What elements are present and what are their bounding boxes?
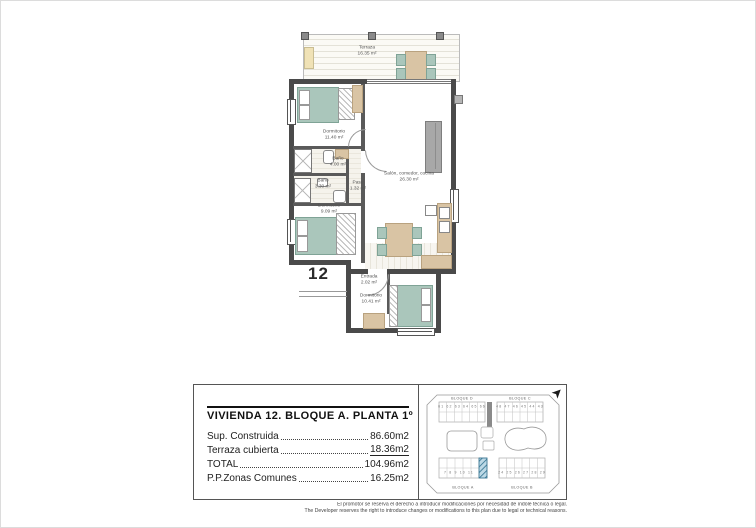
terrace-deck: [303, 34, 460, 82]
wall: [436, 269, 441, 333]
pillow: [299, 90, 310, 105]
pillow: [297, 236, 308, 252]
room-label-dormitorio-1: Dormitorio 11.40 m²: [323, 129, 345, 140]
floor-plan-sheet: 12 Terraza 16.35 m² Dormitorio 11.40 m² …: [0, 0, 756, 528]
info-row-value: 104.96m2: [365, 459, 409, 470]
appliance: [439, 221, 450, 233]
info-row-label: Sup. Construida: [207, 431, 279, 442]
room-label-salon: Salón, comedor, cocina 26.30 m²: [384, 171, 434, 182]
tv-unit: [425, 205, 437, 216]
appliance: [439, 207, 450, 219]
terrace-planter: [304, 47, 314, 69]
wall: [289, 79, 367, 84]
window-line: [398, 331, 432, 332]
wall: [346, 269, 368, 274]
entry-mat: [363, 313, 385, 329]
path-line: [299, 296, 347, 297]
info-row: TOTAL 104.96m2: [207, 457, 409, 470]
pillow: [299, 105, 310, 120]
room-label-entrada: Entrada 2.02 m²: [361, 274, 378, 285]
chair: [412, 227, 422, 239]
dining-table: [385, 223, 413, 257]
room-area: 16.35 m²: [358, 51, 377, 57]
room-area: 11.40 m²: [323, 135, 345, 141]
info-row-value: 16.25m2: [370, 473, 409, 484]
door-arc: [365, 150, 387, 172]
door-arc: [348, 129, 366, 147]
info-row-label: Terraza cubierta: [207, 445, 279, 456]
info-row-value: 86.60m2: [370, 431, 409, 442]
terrace-chair: [396, 54, 406, 66]
toilet: [333, 190, 346, 203]
info-divider: [207, 406, 409, 408]
legal-line-en: The Developer reserves the right to intr…: [227, 508, 567, 514]
kitchen-counter: [421, 255, 452, 269]
info-panel: VIVIENDA 12. BLOQUE A. PLANTA 1º Sup. Co…: [193, 384, 419, 500]
pillow: [421, 288, 431, 305]
block-c-unit-numbers: 48 47 46 45 44 43: [496, 405, 544, 408]
site-plan-panel: ➤ BLOQUE D BLOQUE C: [418, 384, 567, 500]
room-label-paso: Paso 1.32 m²: [350, 180, 366, 191]
room-label-terraza: Terraza 16.35 m²: [358, 45, 377, 56]
chair: [377, 227, 387, 239]
block-a-unit-numbers: 7 8 9 10 11: [444, 471, 474, 474]
wardrobe: [336, 213, 356, 255]
info-row: Terraza cubierta 18.36m2: [207, 443, 409, 456]
sliding-door: [367, 79, 451, 84]
info-row-label: P.P.Zonas Comunes: [207, 473, 297, 484]
leader-dots: [299, 481, 368, 482]
terrace-post: [301, 32, 309, 40]
info-row: P.P.Zonas Comunes 16.25m2: [207, 471, 409, 484]
room-label-bano-2: Baño 3.30 m²: [315, 178, 331, 189]
dresser: [352, 85, 363, 113]
room-area: 3.30 m²: [315, 184, 331, 190]
room-label-dormitorio-2: Dormitorio 9.09 m²: [318, 203, 340, 214]
hall-floor: [349, 149, 361, 203]
room-label-dormitorio-3: Dormitorio 10.41 m²: [360, 293, 382, 304]
window-line: [290, 220, 291, 242]
terrace-post: [436, 32, 444, 40]
pillow: [421, 305, 431, 322]
info-row-label: TOTAL: [207, 459, 238, 470]
shower: [294, 149, 312, 173]
room-area: 2.02 m²: [361, 280, 378, 286]
block-c-label: BLOQUE C: [509, 397, 531, 401]
floor-plan-drawing: 12 Terraza 16.35 m² Dormitorio 11.40 m² …: [1, 1, 756, 381]
site-map-drawing: [419, 385, 567, 501]
terrace-post: [368, 32, 376, 40]
legal-disclaimer: El promotor se reserva el derecho a intr…: [227, 502, 567, 515]
info-title: VIVIENDA 12. BLOQUE A. PLANTA 1º: [207, 410, 413, 422]
room-area: 10.41 m²: [360, 299, 382, 305]
terrace-table: [405, 51, 427, 81]
room-label-bano-1: Baño 4.00 m²: [330, 156, 346, 167]
room-area: 4.00 m²: [330, 162, 346, 168]
shower: [294, 178, 311, 203]
block-b-label: BLOQUE B: [511, 486, 533, 490]
sofa: [425, 121, 442, 173]
window-line: [290, 100, 291, 122]
info-row: Sup. Construida 86.60m2: [207, 429, 409, 442]
sofa-back-line: [435, 123, 436, 169]
block-b-unit-numbers: 24 25 26 27 28 29: [498, 471, 546, 474]
window: [397, 328, 435, 336]
leader-dots: [240, 467, 362, 468]
room-area: 26.30 m²: [384, 177, 434, 183]
block-a-label: BLOQUE A: [452, 486, 473, 490]
unit-number: 12: [308, 264, 329, 284]
wardrobe: [389, 285, 398, 327]
wall: [387, 269, 436, 274]
block-d-label: BLOQUE D: [451, 397, 473, 401]
room-area: 9.09 m²: [318, 209, 340, 215]
leader-dots: [281, 453, 368, 454]
window: [287, 99, 296, 125]
meter-box: [454, 95, 463, 104]
leader-dots: [281, 439, 368, 440]
room-area: 1.32 m²: [350, 186, 366, 192]
window-line: [453, 190, 454, 220]
chair: [377, 244, 387, 256]
pillow: [297, 220, 308, 236]
path-line: [299, 291, 347, 292]
block-d-unit-numbers: 61 62 63 64 65 66: [438, 405, 486, 408]
info-row-value: 18.36m2: [370, 444, 409, 456]
terrace-chair: [426, 54, 436, 66]
